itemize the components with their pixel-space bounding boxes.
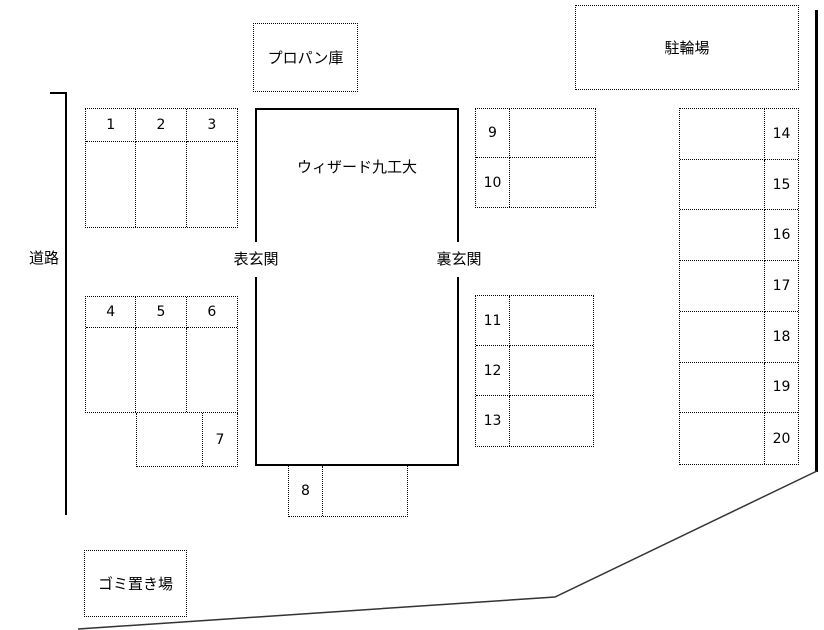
site-boundary-diagonal-line <box>0 0 824 630</box>
parking-site-plan: 道路 プロパン庫 駐輪場 ウィザード九工大 表玄関 裏玄関 1 2 3 4 5 … <box>0 0 824 630</box>
